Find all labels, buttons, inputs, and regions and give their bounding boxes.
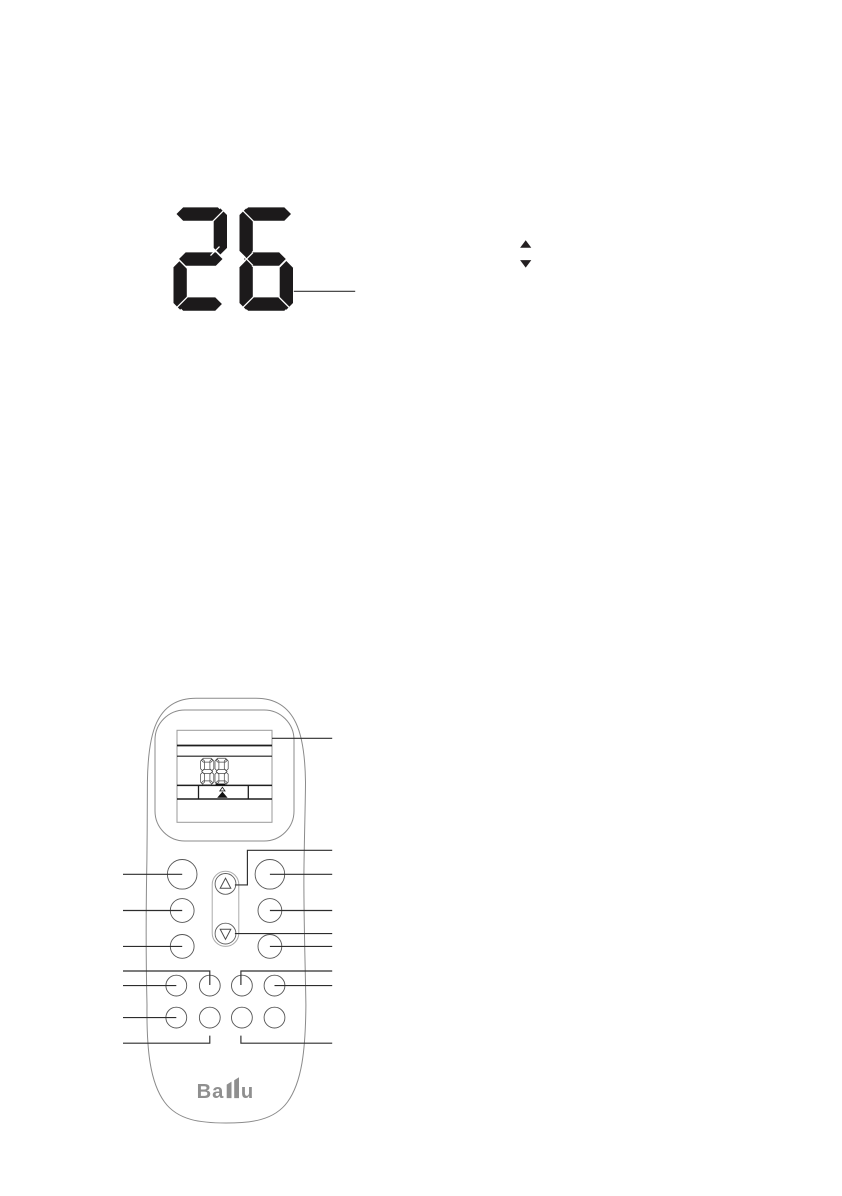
svg-text:Ba: Ba	[197, 1081, 225, 1103]
svg-text:u: u	[241, 1081, 253, 1103]
